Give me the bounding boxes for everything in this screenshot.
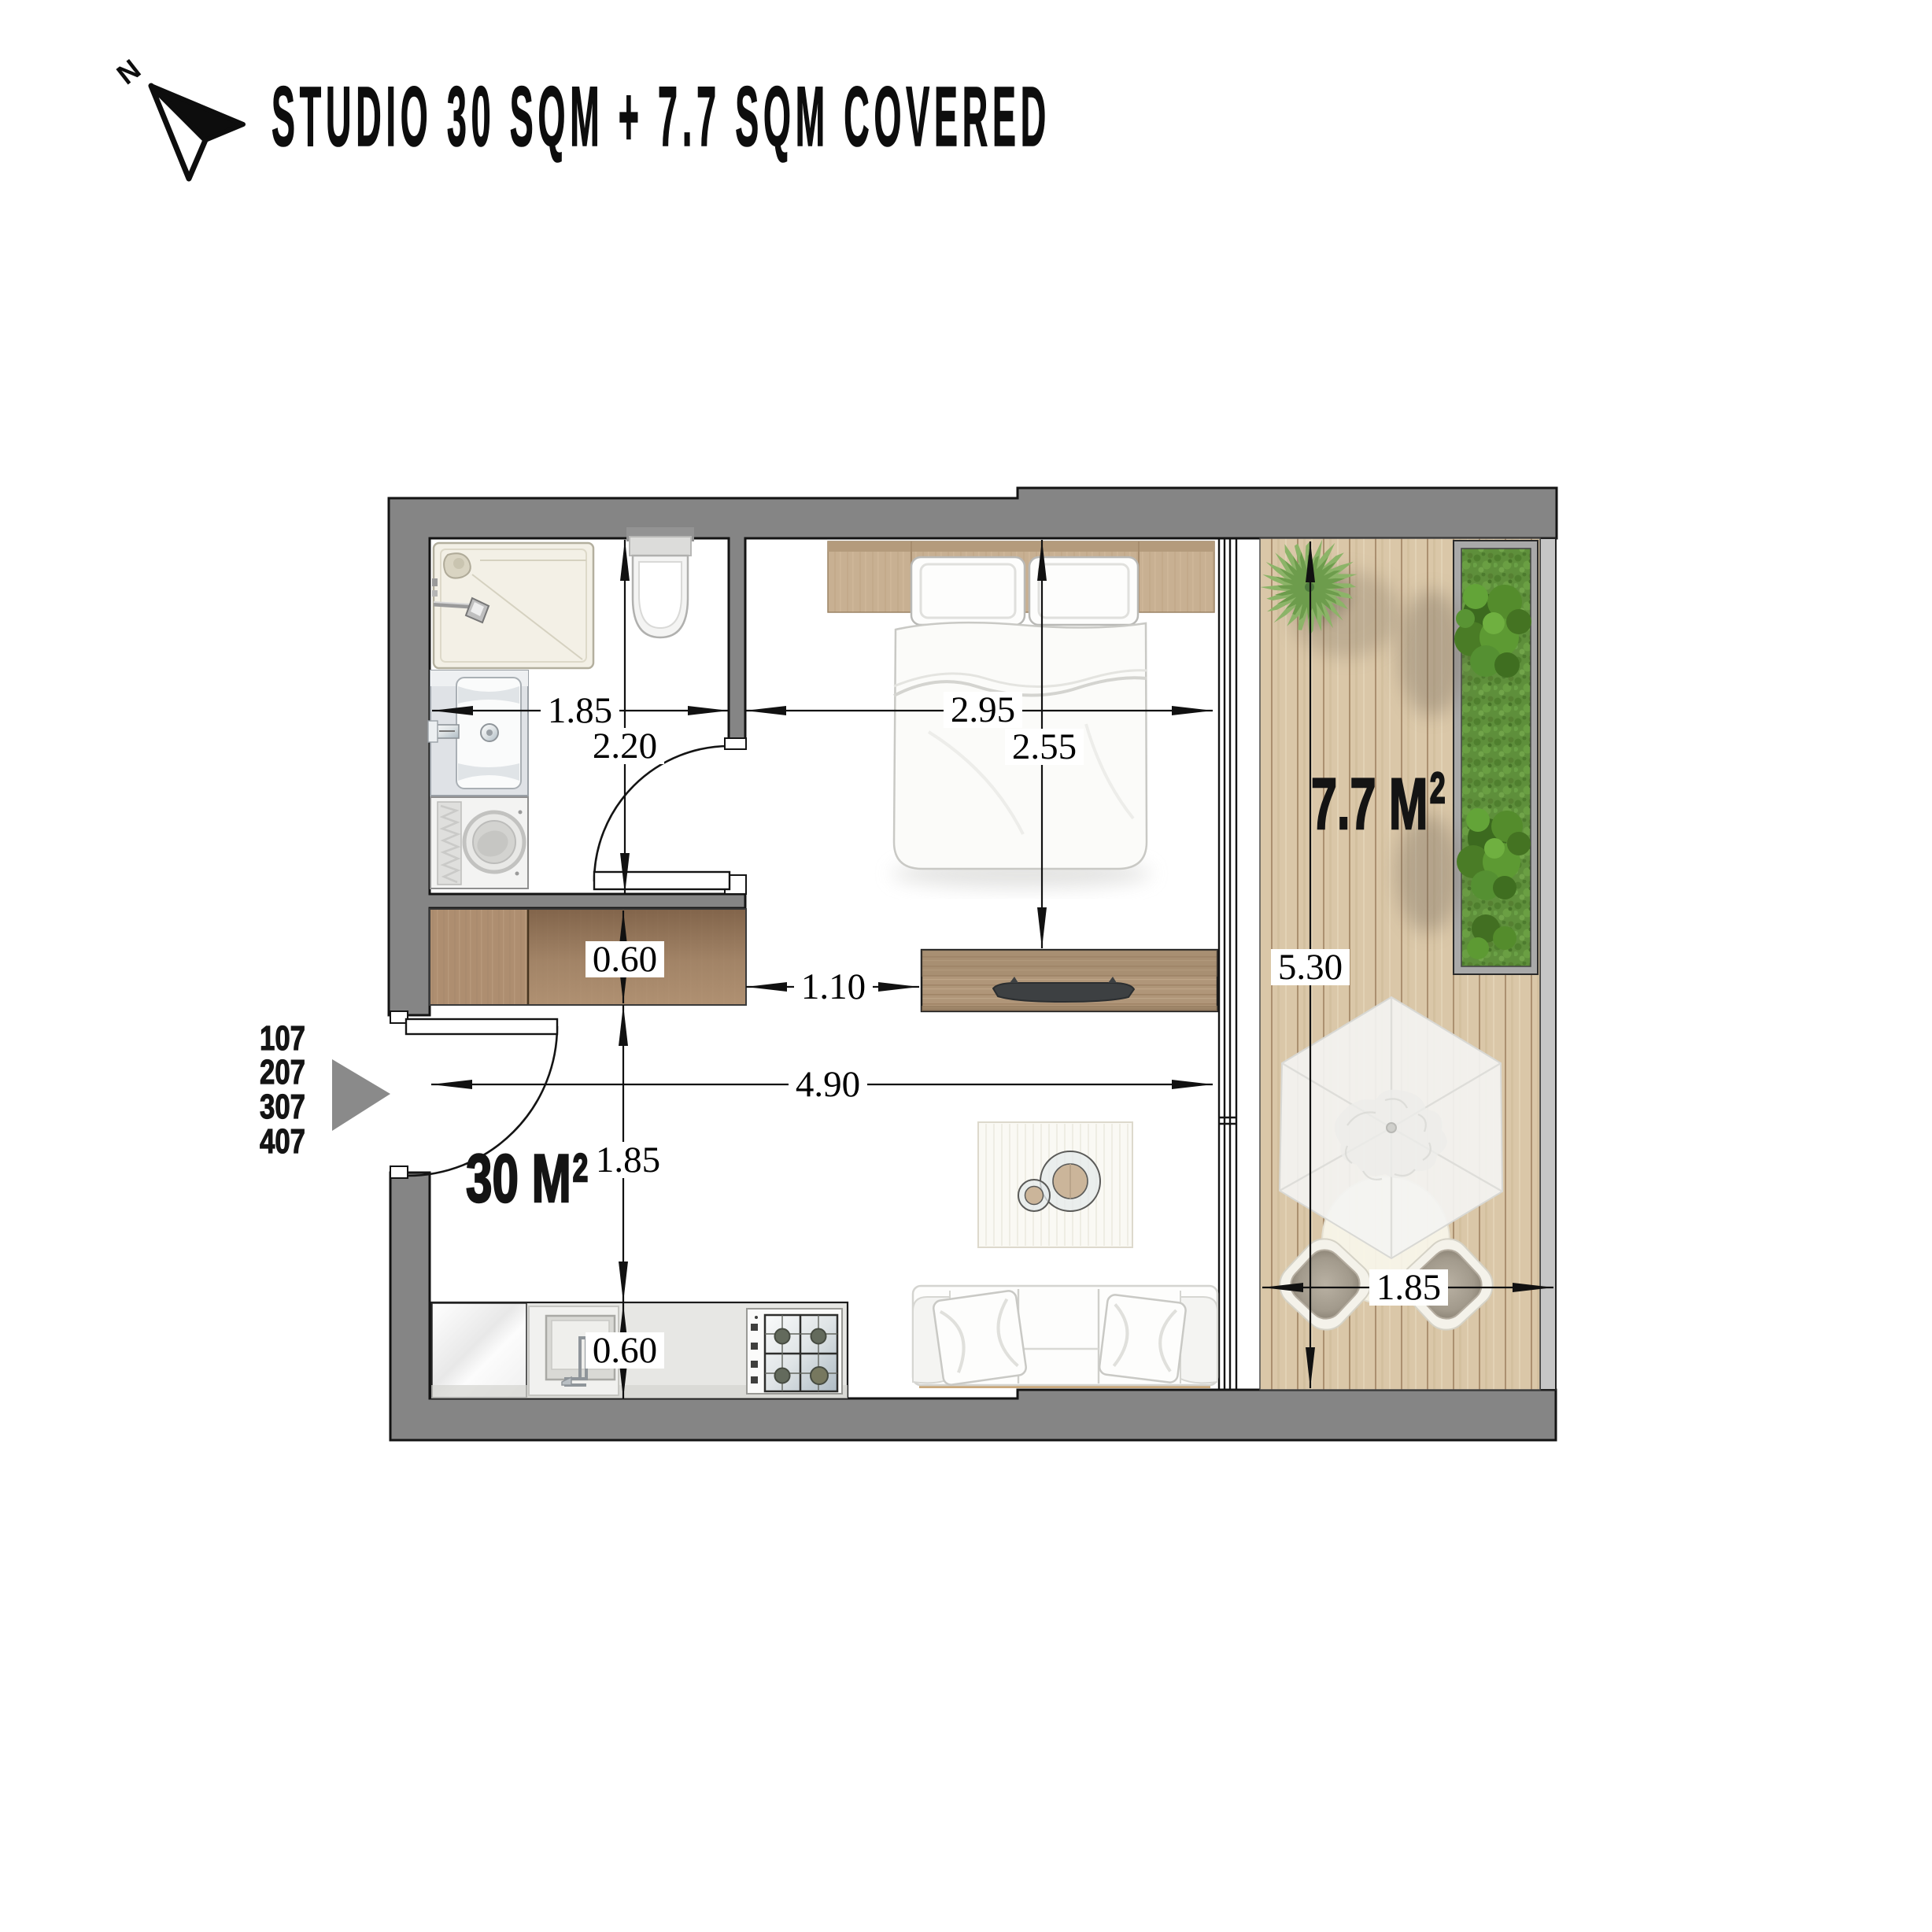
svg-text:1.85: 1.85 bbox=[1376, 1267, 1441, 1308]
svg-text:307: 307 bbox=[260, 1088, 305, 1126]
svg-text:30 M: 30 M bbox=[466, 1140, 571, 1216]
svg-text:4.90: 4.90 bbox=[796, 1064, 860, 1105]
svg-text:0.60: 0.60 bbox=[593, 1330, 657, 1371]
svg-text:2: 2 bbox=[1430, 763, 1446, 812]
svg-text:407: 407 bbox=[260, 1122, 305, 1161]
svg-text:2: 2 bbox=[573, 1147, 588, 1191]
svg-text:STUDIO 30 SQM + 7.7 SQM COVERE: STUDIO 30 SQM + 7.7 SQM COVERED bbox=[272, 68, 1051, 164]
svg-text:N: N bbox=[110, 53, 146, 91]
svg-text:207: 207 bbox=[260, 1053, 305, 1092]
svg-text:2.95: 2.95 bbox=[951, 689, 1015, 730]
svg-text:5.30: 5.30 bbox=[1278, 947, 1343, 988]
svg-text:1.10: 1.10 bbox=[801, 966, 866, 1007]
svg-text:7.7 M: 7.7 M bbox=[1311, 764, 1428, 844]
svg-text:1.85: 1.85 bbox=[596, 1140, 660, 1180]
svg-text:0.60: 0.60 bbox=[593, 939, 657, 980]
svg-text:2.55: 2.55 bbox=[1012, 726, 1077, 767]
svg-text:107: 107 bbox=[260, 1019, 305, 1058]
svg-text:2.20: 2.20 bbox=[593, 726, 657, 767]
